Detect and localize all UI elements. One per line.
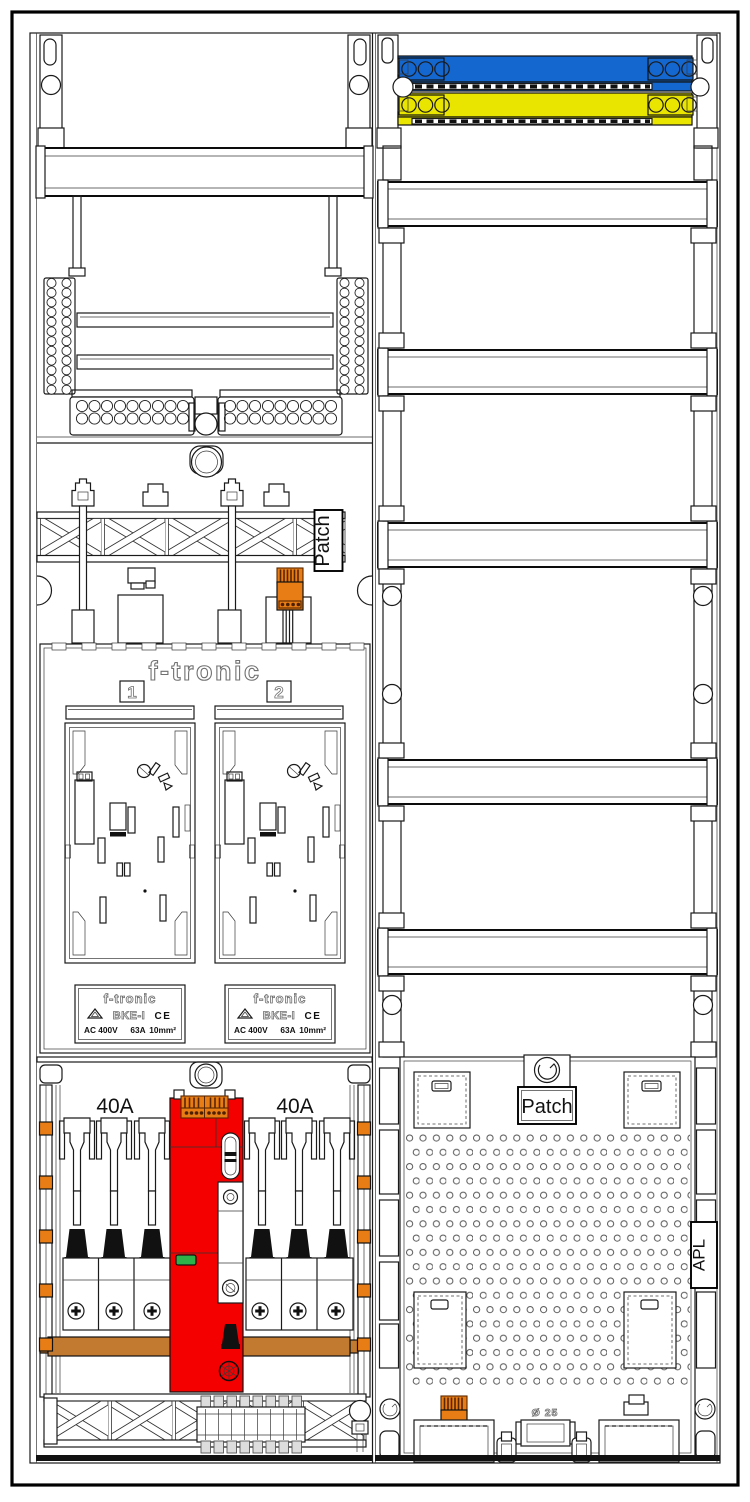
knockout-square-left bbox=[414, 1072, 470, 1128]
breaker-rating-left: 40A bbox=[96, 1095, 133, 1118]
bke-mounting-plate-2 bbox=[215, 723, 345, 963]
ce-mark: CE bbox=[305, 1011, 322, 1022]
pe-busbar bbox=[398, 93, 696, 125]
patch-label-left: Patch bbox=[312, 510, 343, 571]
breaker-rating-right: 40A bbox=[276, 1095, 313, 1118]
din-rail bbox=[378, 928, 717, 976]
sls-top-terminal bbox=[181, 1096, 228, 1118]
plate-brand: f-tronic bbox=[254, 991, 307, 1006]
sls-side-module bbox=[218, 1182, 243, 1303]
plate-model: BKE-I bbox=[113, 1010, 145, 1022]
knockout-slot-right bbox=[624, 1292, 676, 1368]
din-rail bbox=[378, 348, 717, 396]
plate-wire: 10mm² bbox=[299, 1025, 326, 1035]
apl-section: Patch APL Ø 25 bbox=[375, 1055, 720, 1462]
apl-label: APL bbox=[690, 1222, 718, 1288]
meter-field-2-label: 2 bbox=[274, 683, 283, 702]
rj45-plug-icon bbox=[221, 479, 243, 506]
rj45-plug-icon bbox=[72, 479, 94, 506]
plate-current: 63A bbox=[280, 1025, 295, 1035]
bke-rating-plate-2: f-tronic BKE-I CE AC 400V 63A 10mm² bbox=[225, 985, 335, 1043]
din-rail bbox=[378, 180, 717, 228]
patch-label-right: Patch bbox=[518, 1087, 576, 1124]
patch-label-left-text: Patch bbox=[312, 515, 334, 566]
sls-lever bbox=[222, 1133, 240, 1179]
bke-rating-plate-1: f-tronic BKE-I CE AC 400V 63A 10mm² bbox=[75, 985, 185, 1043]
brand-heading: f-tronic bbox=[149, 656, 262, 686]
patch-label-right-text: Patch bbox=[521, 1096, 572, 1118]
din-rail bbox=[378, 758, 717, 806]
meter-field-1-label: 1 bbox=[127, 683, 136, 702]
plate-wire: 10mm² bbox=[149, 1025, 176, 1035]
plate-model: BKE-I bbox=[263, 1010, 295, 1022]
din-rail bbox=[378, 521, 717, 569]
sls-status-indicator bbox=[176, 1255, 196, 1265]
plate-voltage: AC 400V bbox=[234, 1025, 268, 1035]
apl-label-text: APL bbox=[690, 1239, 709, 1271]
meter-section: f-tronic 1 2 f-tronic BKE-I CE AC 400V 6… bbox=[40, 643, 370, 1053]
sls-main-switch bbox=[170, 1090, 243, 1392]
ce-mark: CE bbox=[155, 1011, 172, 1022]
neutral-busbar bbox=[398, 56, 696, 91]
bke-mounting-plate-1 bbox=[65, 723, 195, 963]
plate-brand: f-tronic bbox=[104, 991, 157, 1006]
multimedia-power-terminal bbox=[277, 568, 303, 610]
cabinet-schematic: Patch f-tronic 1 2 bbox=[0, 0, 750, 1497]
knockout-square-right bbox=[624, 1072, 680, 1128]
meter-cabinet-drawing: Patch f-tronic 1 2 bbox=[0, 0, 750, 1497]
plate-voltage: AC 400V bbox=[84, 1025, 118, 1035]
conduit-diameter-text: Ø 25 bbox=[532, 1407, 559, 1419]
knockout-slot-left bbox=[414, 1292, 466, 1368]
plate-current: 63A bbox=[130, 1025, 145, 1035]
left-top-din-rail bbox=[36, 146, 373, 198]
